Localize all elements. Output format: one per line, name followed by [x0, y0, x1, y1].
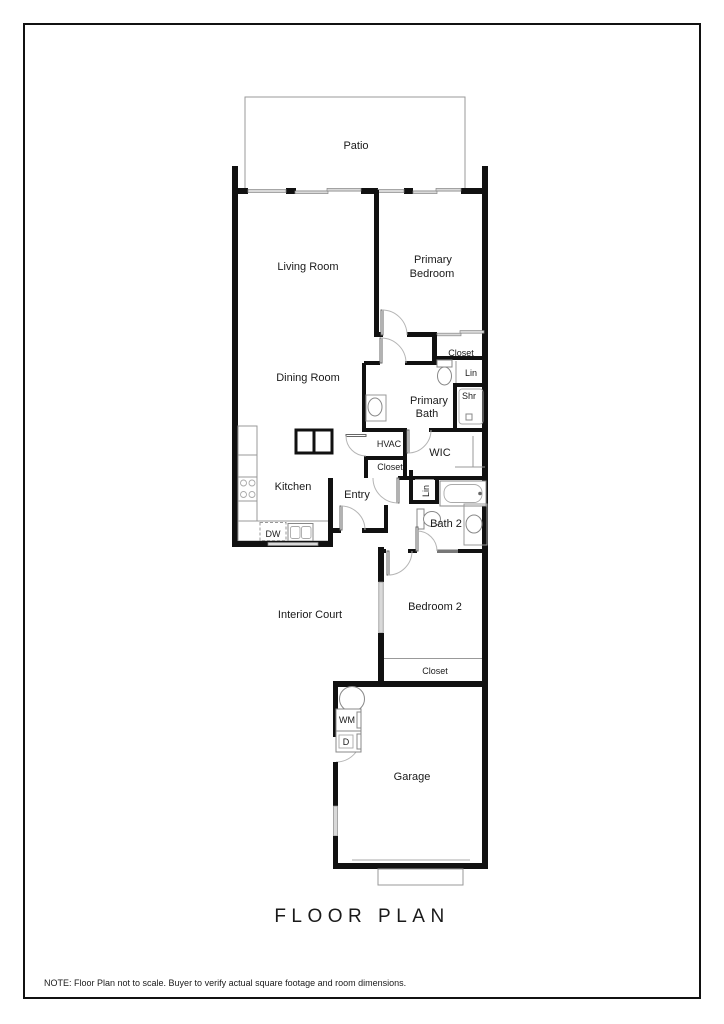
primary-bath-label: Primary	[410, 395, 448, 407]
kitchen-label: Kitchen	[275, 481, 312, 493]
linen2-label: Lin	[421, 485, 431, 497]
primary-bedroom-label: Primary	[414, 254, 452, 266]
dryer-icon	[357, 734, 361, 749]
wall-living-bedroom-divider	[374, 190, 379, 335]
sliding-door-icon	[295, 191, 328, 194]
garage-label: Garage	[394, 771, 431, 783]
room-kitchen: DW Kitchen	[232, 426, 333, 547]
door-swing-icon	[346, 435, 366, 437]
sliding-door-icon	[413, 191, 437, 194]
wall-seg	[429, 428, 487, 432]
door-swing-icon	[388, 551, 412, 575]
page-border	[24, 24, 700, 998]
kitchen-counter	[238, 521, 331, 541]
stove-icon	[249, 492, 255, 498]
door-swing-icon	[346, 436, 366, 456]
wall-top-seg	[404, 188, 413, 194]
wall-garage-south	[333, 863, 488, 869]
water-heater-icon	[340, 687, 365, 712]
dishwasher-label: DW	[266, 529, 281, 539]
interior-court-label: Interior Court	[278, 609, 342, 621]
door-swing-icon	[417, 531, 437, 551]
wall-seg	[384, 505, 388, 533]
bathtub-icon	[478, 492, 482, 496]
floor-plan-page: Patio Living Room Primary Bedroom Di	[0, 0, 724, 1024]
room-patio: Patio	[245, 97, 465, 191]
wall-top-seg	[461, 188, 487, 194]
door-swing-icon	[373, 478, 398, 503]
sliding-door-icon	[437, 333, 461, 336]
linen-label: Lin	[465, 368, 477, 378]
bedroom2-closet-label: Closet	[422, 666, 448, 676]
room-shower: Shr	[453, 387, 483, 428]
wall-seg	[435, 478, 439, 504]
room-primary-bedroom: Primary Bedroom	[374, 190, 484, 337]
wall-seg	[364, 361, 380, 365]
dryer-label: D	[343, 737, 350, 747]
door-swing-icon	[397, 478, 399, 503]
toilet-icon	[417, 509, 424, 529]
wall-seg	[378, 633, 384, 687]
dining-room-label: Dining Room	[276, 372, 340, 384]
window-icon	[334, 806, 338, 836]
wall-seg	[432, 335, 437, 365]
room-interior-court: Interior Court	[278, 609, 342, 621]
sink-icon	[466, 515, 482, 533]
window-icon	[378, 190, 404, 193]
washer-label: WM	[339, 715, 355, 725]
room-living: Living Room	[277, 261, 338, 273]
sliding-door-icon	[460, 331, 484, 334]
wall-seg	[366, 456, 407, 460]
window-icon	[268, 543, 318, 546]
wall-seg	[458, 549, 487, 553]
primary-bedroom-label: Bedroom	[410, 268, 455, 280]
wall-kitchen-entry	[328, 478, 333, 541]
toilet-primary	[437, 360, 452, 385]
bath2-label: Bath 2	[430, 518, 462, 530]
hvac-label: HVAC	[377, 439, 402, 449]
primary-bath-label: Bath	[416, 408, 439, 420]
wall-garage-north	[333, 681, 488, 687]
page-title: FLOOR PLAN	[274, 906, 449, 927]
room-wic: WIC	[407, 430, 487, 480]
wall-top-seg	[286, 188, 296, 194]
hall-closet-label: Closet	[377, 462, 403, 472]
pocket-door-icon	[437, 550, 458, 554]
stove-icon	[241, 492, 247, 498]
door-swing-icon	[380, 338, 382, 363]
shower-label: Shr	[462, 391, 476, 401]
bedroom2-label: Bedroom 2	[408, 601, 462, 613]
wall-seg	[405, 361, 432, 365]
floor-plan-drawing: Patio Living Room Primary Bedroom Di	[0, 0, 724, 1024]
room-linen-bath2: Lin	[409, 470, 439, 504]
window-icon	[379, 582, 383, 633]
sliding-door-icon	[436, 188, 461, 191]
wall-seg	[453, 383, 487, 387]
wall-seg	[409, 470, 413, 504]
room-garage: WM D Garage	[333, 681, 488, 885]
primary-closet-label: Closet	[448, 348, 474, 358]
front-door-icon	[340, 506, 342, 530]
door-swing-icon	[387, 551, 389, 575]
stove-icon	[241, 480, 247, 486]
door-swing-icon	[382, 310, 407, 335]
wall-seg	[403, 430, 407, 480]
door-swing-icon	[407, 430, 409, 453]
room-bedroom2: Bedroom 2 Closet	[378, 547, 482, 687]
kitchen-counter	[238, 426, 257, 521]
wall-top-seg	[233, 188, 248, 194]
living-room-label: Living Room	[277, 261, 338, 273]
front-door-icon	[341, 506, 365, 530]
sliding-door-icon	[327, 188, 361, 191]
wall-seg	[333, 762, 338, 806]
room-hvac: HVAC	[346, 430, 407, 480]
patio-label: Patio	[343, 140, 368, 152]
shower-icon	[466, 414, 472, 420]
wall-seg	[362, 428, 407, 432]
window-icon	[248, 190, 286, 193]
wall-seg	[453, 387, 457, 428]
entry-label: Entry	[344, 489, 370, 501]
garage-door-icon	[378, 869, 463, 885]
door-swing-icon	[381, 338, 406, 363]
wall-seg	[362, 363, 366, 430]
room-linen-primary: Lin	[453, 361, 487, 387]
washer-icon	[357, 712, 361, 728]
toilet-icon	[438, 367, 452, 385]
wall-seg	[378, 547, 384, 582]
stove-icon	[249, 480, 255, 486]
door-swing-icon	[408, 430, 431, 453]
wall-left	[232, 166, 238, 547]
toilet-icon	[437, 360, 452, 367]
sink-icon	[368, 398, 382, 416]
door-swing-icon	[381, 310, 383, 335]
wic-label: WIC	[429, 447, 450, 459]
disclaimer-note: NOTE: Floor Plan not to scale. Buyer to …	[44, 978, 406, 988]
room-dining: Dining Room	[276, 372, 340, 384]
